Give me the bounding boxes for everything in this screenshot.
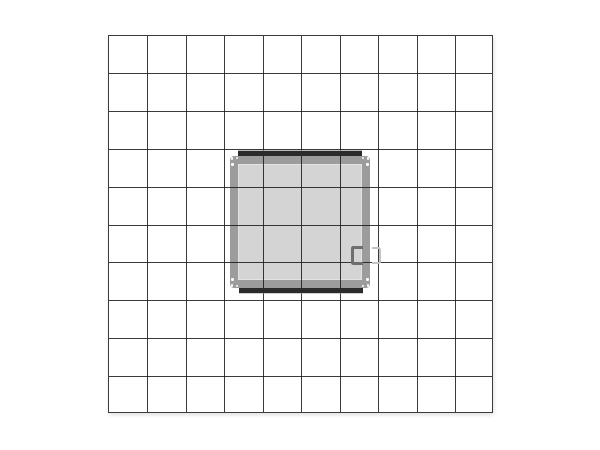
grid-line-vertical [417, 36, 418, 412]
grid-line-horizontal [109, 73, 492, 74]
grid-line-vertical [147, 36, 148, 412]
grid-line-horizontal [109, 149, 492, 150]
top-edge-bar [238, 151, 362, 156]
grid-line-vertical [224, 36, 225, 412]
corner-bolt [231, 163, 233, 165]
inner-door-handle [351, 246, 363, 265]
grid-line-horizontal [109, 338, 492, 339]
structure-frame [230, 156, 370, 288]
corner-bolt [366, 278, 368, 280]
grid-line-horizontal [109, 111, 492, 112]
plan-drawing-canvas [0, 0, 600, 450]
grid-line-vertical [378, 36, 379, 412]
corner-bolt [231, 284, 233, 286]
corner-bolt [367, 284, 369, 286]
grid-line-vertical [455, 36, 456, 412]
grid-line-vertical [186, 36, 187, 412]
corner-bolt [231, 278, 233, 280]
grid-line-horizontal [109, 300, 492, 301]
grid-line-horizontal [109, 376, 492, 377]
outer-door-handle [372, 247, 381, 264]
bottom-edge-bar [239, 288, 363, 293]
corner-bolt [366, 163, 368, 165]
corner-bolt [231, 157, 233, 159]
corner-bolt [367, 157, 369, 159]
